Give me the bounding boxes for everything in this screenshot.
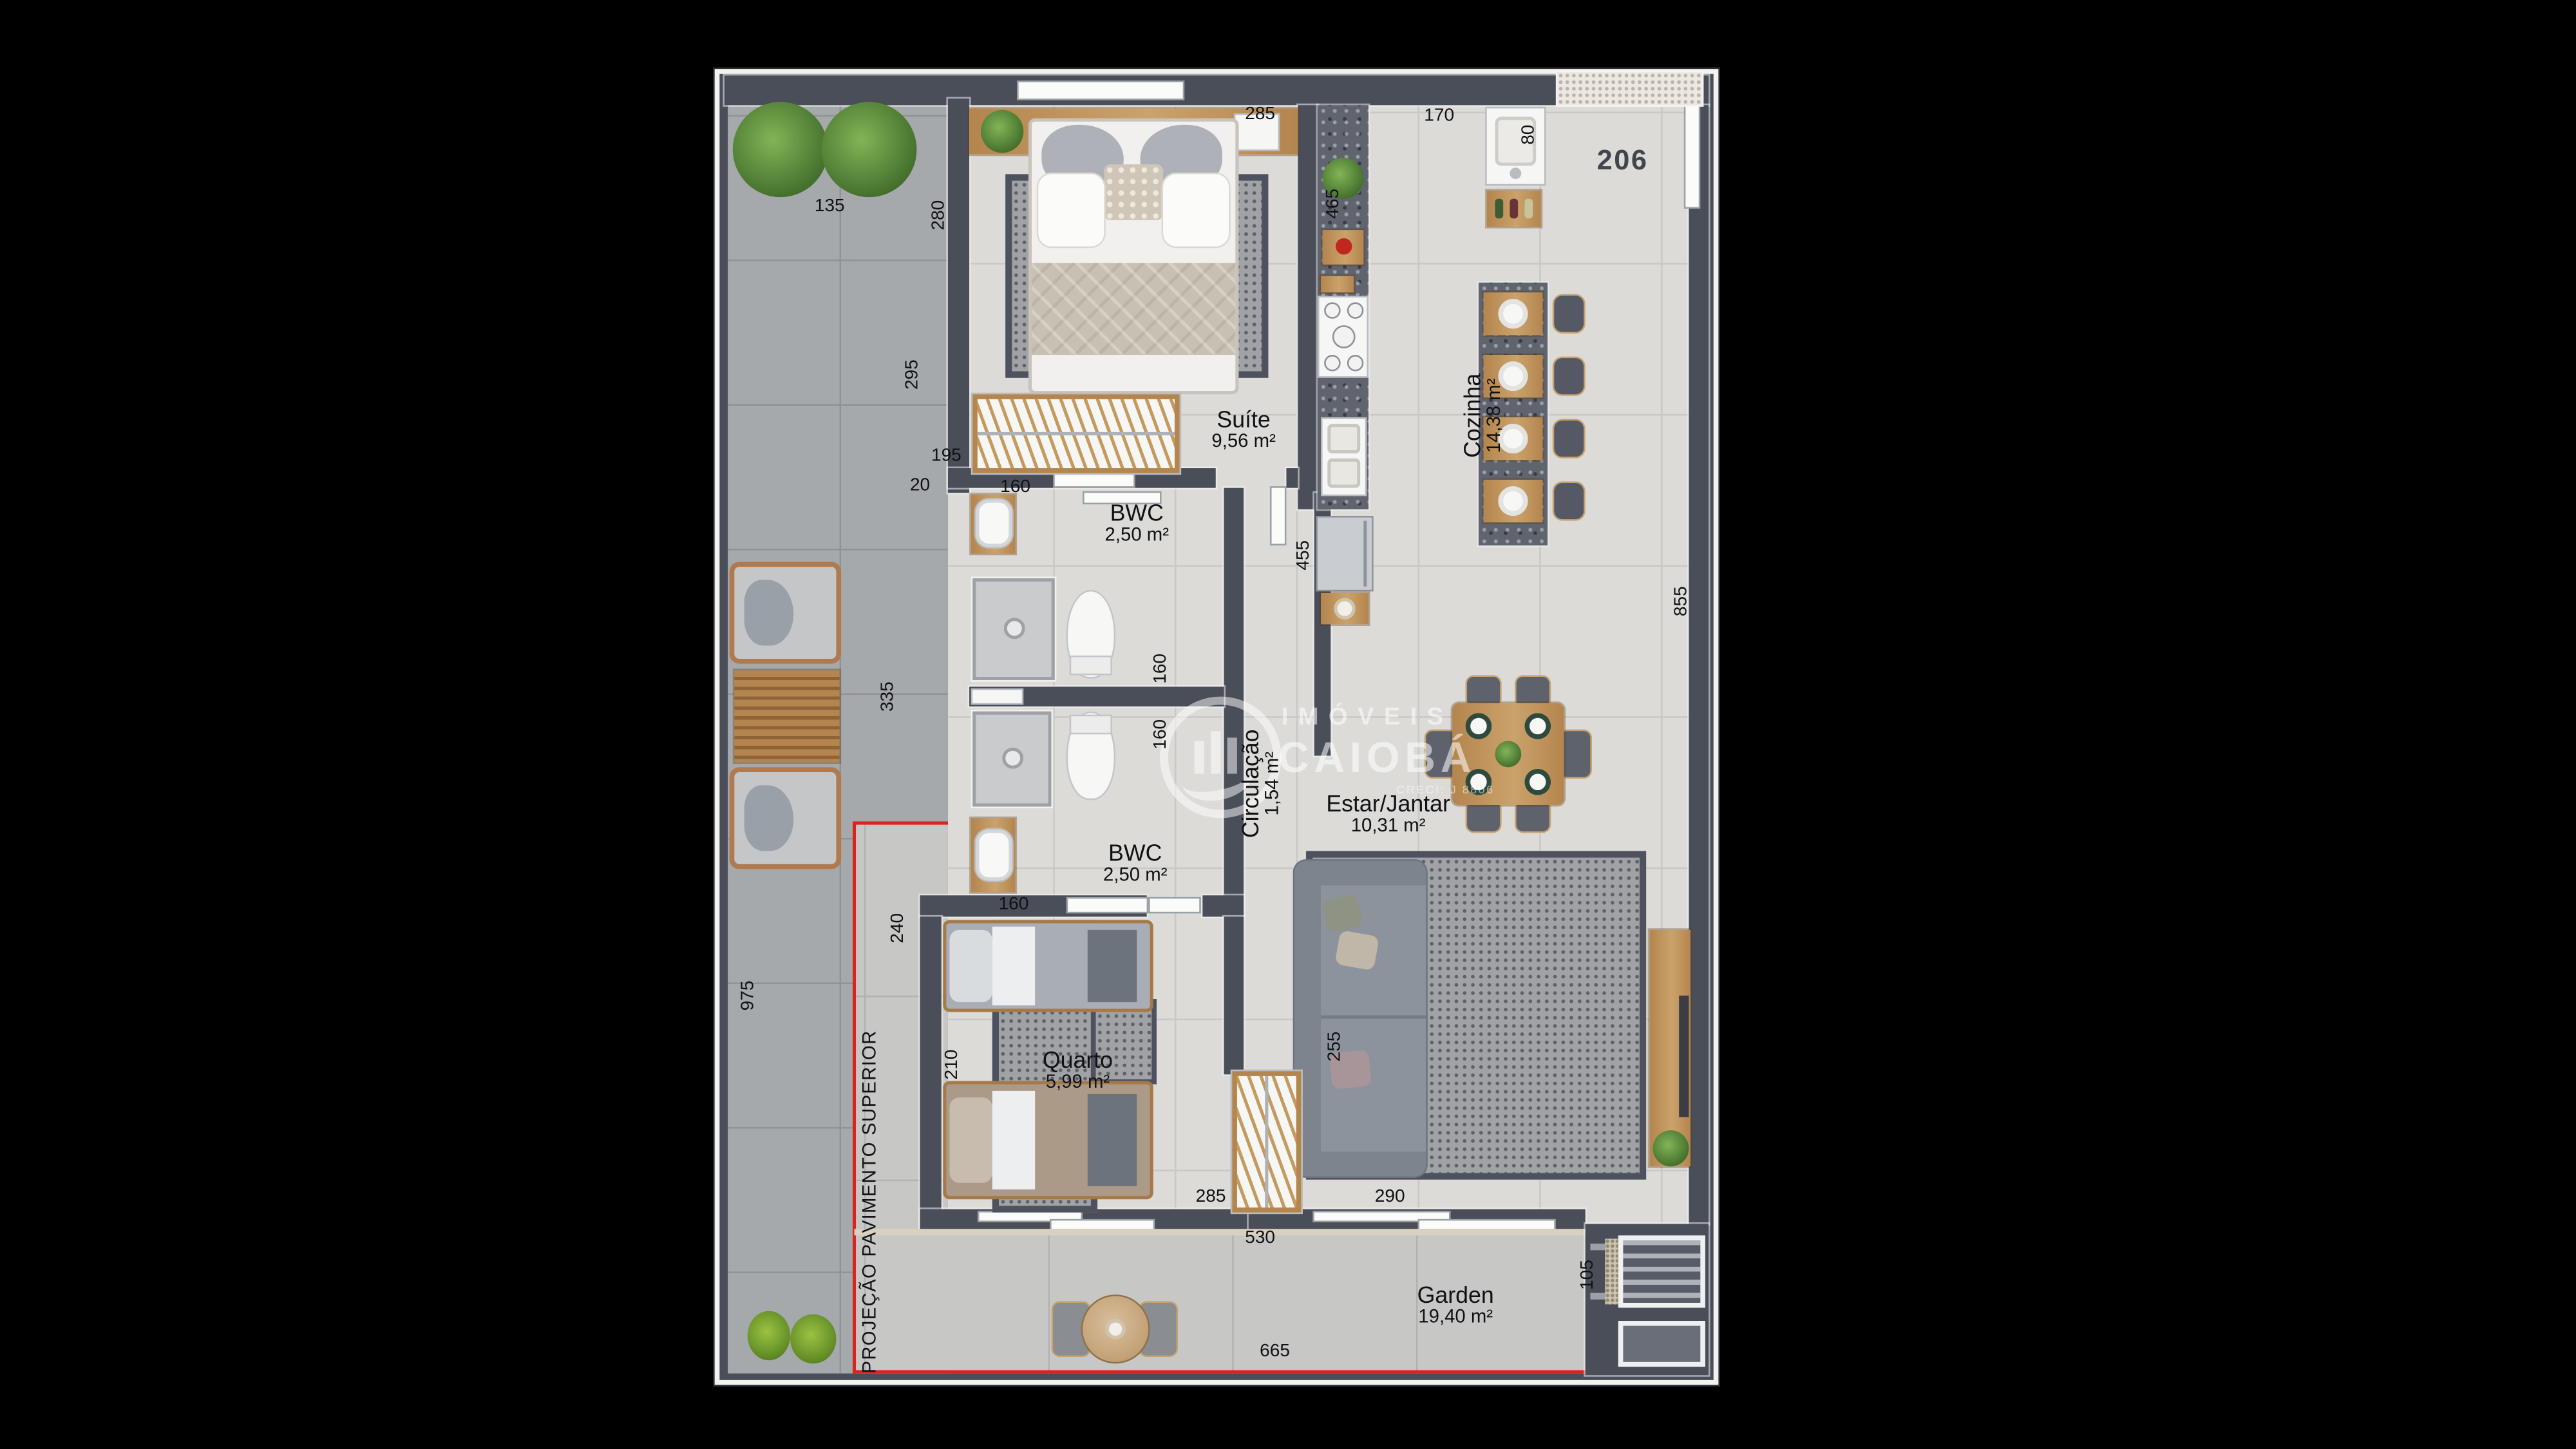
dimension-label: 285 [1196, 1189, 1226, 1207]
room-area: 14,38 m² [1485, 374, 1506, 458]
floor-plan-render: 206 PROJEÇÃO PAVIMENTO SUPERIOR IMÓVEIS … [0, 0, 2576, 1449]
room-name: BWC [1103, 841, 1167, 866]
room-name: Suíte [1211, 408, 1275, 432]
dimension-label: 455 [1295, 540, 1313, 571]
labels-layer: Suíte9,56 m²BWC2,50 m²Cozinha14,38 m²Cir… [0, 0, 2576, 1449]
room-name: Garden [1417, 1283, 1494, 1307]
dimension-label: 195 [931, 448, 961, 466]
dimension-label: 465 [1325, 189, 1343, 219]
room-area: 19,40 m² [1417, 1308, 1494, 1329]
room-label-su-te-0: Suíte9,56 m² [1211, 408, 1275, 453]
dimension-label: 210 [944, 1050, 962, 1080]
dimension-label: 255 [1327, 1032, 1345, 1062]
room-name: BWC [1105, 501, 1169, 526]
dimension-label: 295 [904, 359, 922, 390]
room-area: 2,50 m² [1103, 866, 1167, 887]
dimension-label: 170 [1424, 108, 1454, 126]
room-name: Circulação [1238, 729, 1263, 838]
dimension-label: 285 [1245, 106, 1275, 124]
room-label-garden-7: Garden19,40 m² [1417, 1283, 1494, 1329]
dimension-label: 240 [889, 913, 907, 943]
dimension-label: 80 [1520, 125, 1539, 145]
room-name: Quarto [1043, 1048, 1113, 1073]
dimension-label: 160 [1153, 654, 1171, 684]
room-area: 2,50 m² [1105, 526, 1169, 547]
room-label-cozinha-2: Cozinha14,38 m² [1461, 374, 1506, 458]
dimension-label: 335 [880, 681, 898, 712]
dimension-label: 105 [1580, 1260, 1598, 1290]
room-label-estar-jantar-4: Estar/Jantar10,31 m² [1326, 792, 1450, 838]
room-label-circula-o-3: Circulação1,54 m² [1238, 729, 1284, 838]
room-area: 9,56 m² [1211, 432, 1275, 453]
dimension-label: 530 [1245, 1229, 1275, 1247]
dimension-label: 975 [740, 981, 758, 1011]
room-name: Cozinha [1461, 374, 1485, 458]
dimension-label: 160 [1153, 719, 1171, 750]
dimension-label: 160 [999, 896, 1029, 914]
room-label-quarto-6: Quarto5,99 m² [1043, 1048, 1113, 1094]
dimension-label: 280 [931, 200, 949, 231]
room-label-bwc-5: BWC2,50 m² [1103, 841, 1167, 887]
dimension-label: 135 [815, 198, 845, 216]
dimension-label: 20 [910, 477, 930, 495]
dimension-label: 855 [1673, 586, 1691, 616]
dimension-label: 290 [1375, 1189, 1405, 1207]
room-label-bwc-1: BWC2,50 m² [1105, 501, 1169, 547]
room-area: 1,54 m² [1264, 729, 1285, 838]
dimension-label: 160 [1000, 479, 1030, 497]
room-area: 5,99 m² [1043, 1073, 1113, 1094]
dimension-label: 665 [1260, 1343, 1290, 1361]
room-area: 10,31 m² [1326, 817, 1450, 838]
room-name: Estar/Jantar [1326, 792, 1450, 817]
